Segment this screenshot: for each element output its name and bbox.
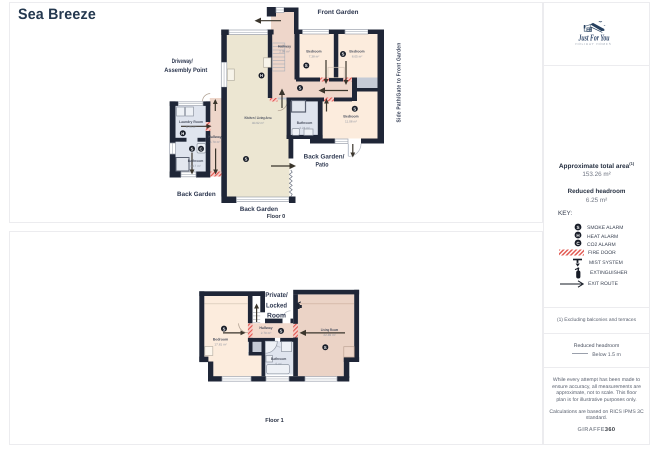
svg-text:H: H — [260, 73, 263, 78]
svg-text:Back Garden: Back Garden — [240, 206, 278, 213]
svg-text:Back Garden/: Back Garden/ — [304, 154, 345, 161]
svg-text:Bedroom: Bedroom — [349, 50, 364, 54]
svg-text:Living Room: Living Room — [321, 328, 339, 332]
svg-text:2.08 m²: 2.08 m² — [279, 49, 290, 53]
svg-text:4.24 m²: 4.24 m² — [299, 126, 310, 130]
svg-text:Room: Room — [267, 313, 286, 320]
svg-text:S: S — [245, 157, 248, 162]
svg-text:S: S — [324, 345, 327, 350]
svg-text:S: S — [305, 63, 308, 68]
svg-text:Locked: Locked — [266, 303, 287, 310]
svg-text:Private/: Private/ — [265, 292, 288, 299]
svg-text:Hallway: Hallway — [259, 326, 272, 330]
svg-text:Hallway: Hallway — [208, 135, 221, 139]
svg-text:Kitchen / Living Area: Kitchen / Living Area — [245, 116, 273, 120]
svg-text:Bedroom: Bedroom — [213, 338, 228, 342]
svg-text:Side Path/Gate to Front Garden: Side Path/Gate to Front Garden — [396, 42, 403, 122]
svg-text:S: S — [223, 326, 226, 331]
svg-text:Bathroom: Bathroom — [297, 121, 313, 125]
svg-text:Patio: Patio — [316, 162, 329, 169]
svg-text:Driveway/: Driveway/ — [172, 58, 193, 65]
svg-text:Bedroom: Bedroom — [306, 50, 321, 54]
svg-text:8.05 m²: 8.05 m² — [352, 54, 363, 58]
svg-text:Bathroom: Bathroom — [188, 159, 204, 163]
svg-text:S: S — [280, 329, 283, 334]
svg-text:S: S — [576, 224, 579, 229]
svg-text:17.81 m²: 17.81 m² — [214, 342, 226, 346]
svg-text:7.38 m²: 7.38 m² — [309, 54, 320, 58]
svg-text:Laundry Room: Laundry Room — [179, 120, 203, 124]
svg-text:S: S — [299, 86, 302, 91]
svg-text:Back Garden: Back Garden — [177, 191, 216, 198]
svg-text:H: H — [181, 131, 184, 136]
svg-text:Just For You: Just For You — [578, 33, 610, 43]
svg-text:Floor 0: Floor 0 — [267, 213, 286, 220]
svg-text:Bathroom: Bathroom — [271, 357, 287, 361]
svg-text:S: S — [342, 52, 345, 57]
svg-text:Hallway: Hallway — [278, 45, 291, 49]
svg-text:S: S — [353, 107, 356, 112]
svg-text:Assembly Point: Assembly Point — [164, 67, 208, 74]
svg-text:HOLIDAY HOMES: HOLIDAY HOMES — [575, 42, 611, 46]
svg-text:C: C — [199, 147, 202, 152]
svg-text:40.92 m²: 40.92 m² — [252, 121, 264, 125]
svg-text:22.49 m²: 22.49 m² — [323, 333, 335, 337]
svg-text:11.08 m²: 11.08 m² — [345, 119, 357, 123]
svg-text:S: S — [191, 147, 194, 152]
svg-text:Front Garden: Front Garden — [318, 9, 359, 16]
svg-text:Floor 1: Floor 1 — [265, 417, 284, 424]
svg-text:4.70 m²: 4.70 m² — [210, 140, 221, 144]
svg-text:5 m²: 5 m² — [276, 362, 282, 366]
svg-text:2.70 m²: 2.70 m² — [261, 331, 272, 335]
svg-text:3.17 m²: 3.17 m² — [190, 164, 201, 168]
svg-text:Bedroom: Bedroom — [343, 115, 358, 119]
svg-text:3.79 m²: 3.79 m² — [186, 125, 197, 129]
